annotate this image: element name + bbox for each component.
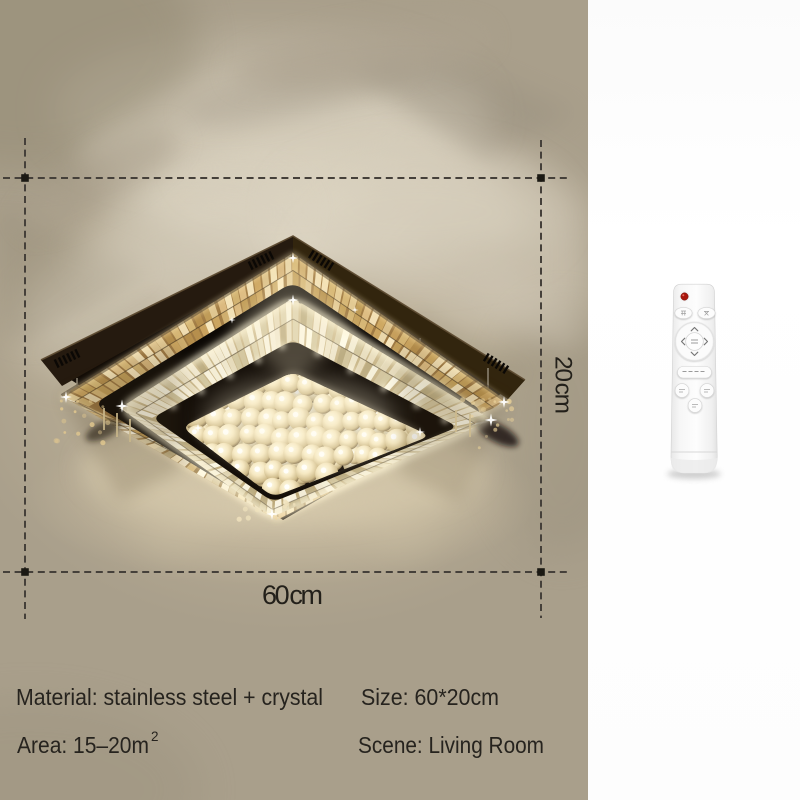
svg-text:60cm: 60cm	[262, 580, 323, 610]
svg-text:Scene: Living Room: Scene: Living Room	[358, 732, 544, 758]
svg-text:Size: 60*20cm: Size: 60*20cm	[361, 684, 499, 710]
svg-text:2: 2	[151, 729, 159, 744]
svg-text:Area: 15–20m: Area: 15–20m	[17, 732, 149, 758]
svg-text:Material: stainless steel + cr: Material: stainless steel + crystal	[16, 684, 323, 710]
svg-text:20cm: 20cm	[550, 356, 577, 414]
